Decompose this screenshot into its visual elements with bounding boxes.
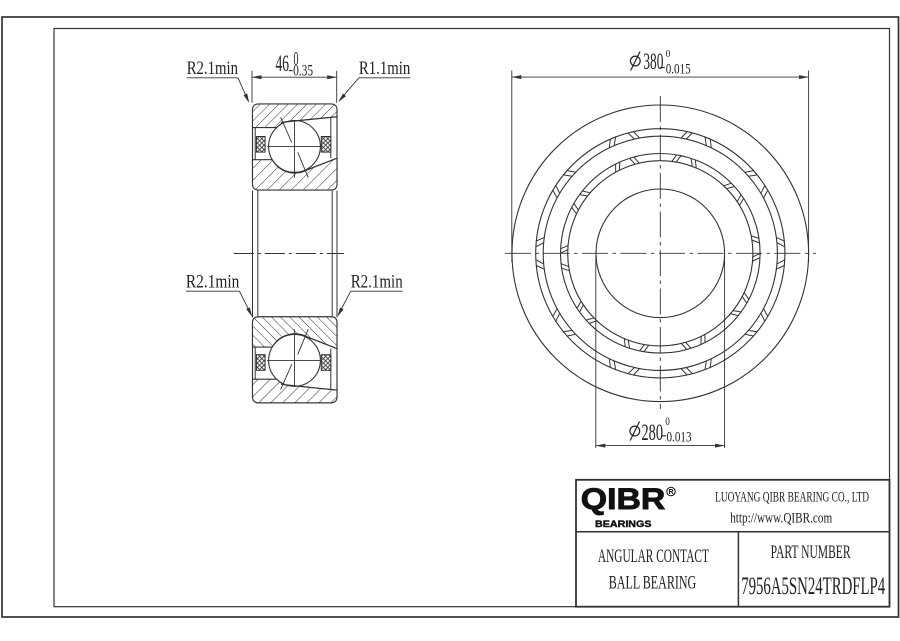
svg-text:http://www.QIBR.com: http://www.QIBR.com bbox=[730, 510, 832, 526]
svg-text:0: 0 bbox=[666, 48, 671, 60]
svg-text:0.013: 0.013 bbox=[667, 429, 692, 445]
svg-text:R2.1min: R2.1min bbox=[187, 58, 239, 79]
svg-text:BALL BEARING: BALL BEARING bbox=[609, 572, 697, 593]
svg-text:380: 380 bbox=[643, 49, 663, 74]
svg-text:LUOYANG QIBR BEARING CO., LTD: LUOYANG QIBR BEARING CO., LTD bbox=[715, 490, 869, 506]
svg-text:0.35: 0.35 bbox=[293, 62, 313, 79]
svg-text:7956A5SN24TRDFLP4: 7956A5SN24TRDFLP4 bbox=[741, 573, 885, 600]
svg-text:0.015: 0.015 bbox=[666, 62, 691, 78]
svg-text:QIBR: QIBR bbox=[581, 483, 666, 516]
svg-text:280: 280 bbox=[642, 420, 664, 445]
svg-text:R2.1min: R2.1min bbox=[351, 271, 403, 292]
svg-text:46: 46 bbox=[276, 51, 290, 76]
svg-text:R2.1min: R2.1min bbox=[186, 271, 240, 292]
svg-text:BEARINGS: BEARINGS bbox=[595, 519, 652, 530]
svg-text:0: 0 bbox=[665, 414, 670, 428]
svg-text:R: R bbox=[668, 489, 673, 496]
svg-text:ANGULAR CONTACT: ANGULAR CONTACT bbox=[598, 546, 709, 567]
svg-text:R1.1min: R1.1min bbox=[359, 58, 411, 79]
svg-text:PART NUMBER: PART NUMBER bbox=[771, 542, 851, 563]
